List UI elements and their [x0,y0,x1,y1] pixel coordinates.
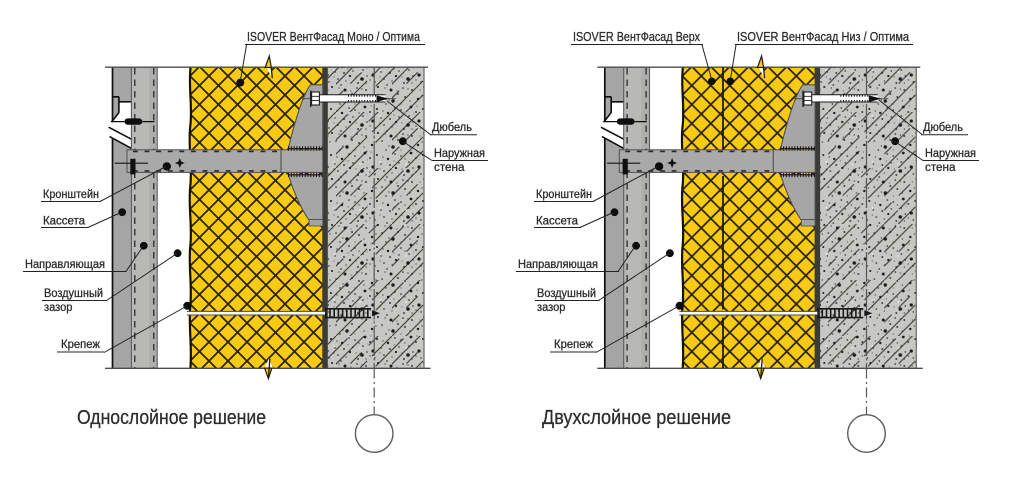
svg-text:ISOVER ВентФасад Верх: ISOVER ВентФасад Верх [573,29,700,44]
svg-text:Дюбель: Дюбель [432,121,472,134]
svg-text:Кронштейн: Кронштейн [43,188,99,201]
svg-text:Воздушный: Воздушный [537,287,596,300]
svg-text:Наружная: Наружная [434,147,485,160]
svg-text:Кассета: Кассета [536,215,579,228]
svg-text:Однослойное решение: Однослойное решение [77,406,266,429]
svg-text:Направляющая: Направляющая [25,258,105,271]
svg-text:Кронштейн: Кронштейн [536,188,592,201]
svg-text:ISOVER ВентФасад Моно / Оптима: ISOVER ВентФасад Моно / Оптима [247,29,421,44]
svg-text:Крепеж: Крепеж [61,338,100,351]
svg-text:Крепеж: Крепеж [554,338,593,351]
svg-text:Направляющая: Направляющая [518,258,598,271]
svg-text:стена: стена [434,161,465,174]
svg-text:Двухслойное решение: Двухслойное решение [542,406,731,429]
svg-text:ISOVER ВентФасад Низ / Оптима: ISOVER ВентФасад Низ / Оптима [737,29,910,44]
svg-text:зазор: зазор [44,301,73,314]
svg-text:Наружная: Наружная [925,147,976,160]
svg-text:Кассета: Кассета [43,215,86,228]
svg-text:Дюбель: Дюбель [923,121,963,134]
svg-text:зазор: зазор [537,301,566,314]
svg-text:Воздушный: Воздушный [44,287,103,300]
svg-text:стена: стена [925,161,956,174]
